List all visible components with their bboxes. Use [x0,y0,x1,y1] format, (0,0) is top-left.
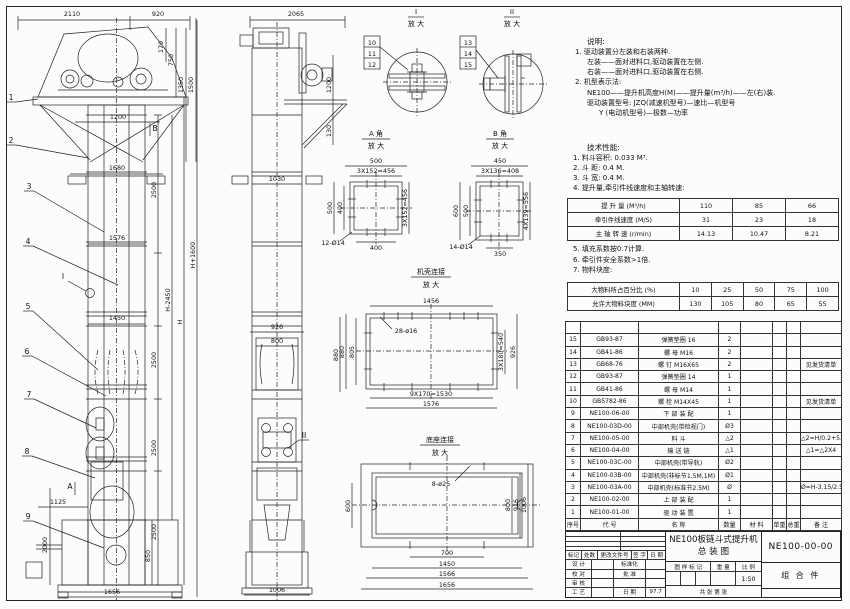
dim-label: 1576 [109,234,125,242]
bom-row: 6NE100-04-00输 送 链△1△1=△2X4 [566,444,842,456]
bom-no: 9 [566,408,581,420]
section-mark-a: A [67,482,73,491]
bom-qty: 1 [719,383,741,395]
dim-label: 400 [370,244,382,252]
callout-6: 6 [25,347,30,356]
dim-label: 600 [452,205,460,217]
detail-subtitle: 放 大 [408,19,424,28]
bom-header: 材 料 [741,518,773,530]
bom-code: GB93-87 [581,371,639,383]
note-line: 驱动装置型号: JZQ(减速机型号)—速比—机型号 [587,98,775,108]
bom-row: 7NE100-05-00料 斗△2△2=H/0.2+5.75 [566,432,842,444]
row-label: 允许大物料块度 (MM) [568,297,680,311]
tb-label: 更改文件号 [598,551,632,559]
bom-name: 螺 栓 M14X45 [639,395,719,407]
row-label: 牵引件线速度 (M/S) [568,213,680,227]
detail-title: B 角 [493,129,507,138]
bom-remark [801,408,842,420]
bom-header: 代 号 [581,518,639,530]
bom-name: 螺 母 M14 [639,383,719,395]
bom-name: 螺 母 M16 [639,346,719,358]
bom-qty: 2 [719,334,741,346]
tb-approve: 批 准 [614,570,646,578]
bom-row: 4NE100-03B-00中部机壳(非标节1.5M,1M)Ø1 [566,469,842,481]
tb-craft: 工 艺 [566,588,592,597]
bom-code: GB93-87 [581,334,639,346]
callout-5: 5 [26,302,31,311]
detail-subtitle: 放 大 [432,448,448,457]
bom-row: 3NE100-03A-00中部机壳(标准节2.5M)ØØ=H-3.15/2.5 [566,481,842,493]
dim-label: 805 [348,346,356,358]
bom-remark: 见发货清单 [801,358,842,370]
bom-code: NE100-03D-00 [581,420,639,432]
cell: 14.13 [680,227,733,241]
bom-name: 中部机壳(带导轨) [639,457,719,469]
bom-remark [801,383,842,395]
dim-label: 3X180=540 [497,333,505,371]
callout-3: 3 [27,182,32,191]
bom-header: 名 称 [639,518,719,530]
bom-remark [801,371,842,383]
dim-label: 850 [144,550,152,562]
dim-label: 1006 [269,586,285,594]
bom-row-empty [566,322,842,334]
tb-scale-label: 比 例 [736,562,760,571]
dim-label: 800 [271,337,283,345]
dim-label: 2500 [150,440,158,456]
tb-check: 校 对 [566,570,592,578]
dim-label: 170 [157,41,165,53]
detail-ii: II 放 大 13 14 15 [460,8,547,118]
dim-label: 500 [370,157,382,165]
note-line: 右装——面对进料口,驱动装置在右侧. [587,67,775,77]
dim-label: 926 [509,346,517,358]
tb-date: 97.7 [646,588,665,597]
bom-name: 输 送 链 [639,444,719,456]
note-line: 2. 机型表示法: [575,77,775,87]
detail-title: II [510,8,514,16]
callout-10: 10 [368,39,376,47]
dim-label: 500 [326,202,334,214]
callout-8: 8 [25,447,30,456]
bom-row: 8NE100-03D-00中部机壳(带检视门)Ø3 [566,420,842,432]
right-panel: 说明: 1. 驱动装置分左装和右装两种. 左装——面对进料口,驱动装置在左侧. … [563,10,843,598]
holes-label: 8-ø25 [432,480,450,488]
callout-13: 13 [464,39,472,47]
detail-mark-ii: II [302,431,306,440]
bom-remark [801,346,842,358]
bom-qty: △1 [719,444,741,456]
bom-remark [801,469,842,481]
bom-name: 弹簧垫圈 16 [639,334,719,346]
bom-no: 14 [566,346,581,358]
dim-label: 2500 [150,182,158,198]
bom-no: 4 [566,469,581,481]
detail-title: I [415,8,417,16]
tech-line: 4. 提升量,牵引件线速度和主轴转速: [573,183,685,193]
dim-label: 3X152=456 [401,189,409,227]
tech-block: 技术性能: 1. 料斗容积: 0.033 M³. 2. 斗 距: 0.4 M. … [573,142,685,194]
cell: 50 [743,283,775,297]
tb-design: 设 计 [566,560,592,568]
row-label: 主 轴 转 速 (r/min) [568,227,680,241]
bom-no: 1 [566,506,581,518]
bom-header: 序号 [566,518,581,530]
tech-line: 3. 斗 宽: 0.4 M. [573,173,685,183]
bom-code: GB68-76 [581,358,639,370]
drawing-subtitle: 总 装 图 [698,547,729,559]
bom-qty: Ø2 [719,457,741,469]
tb-label: 日 期 [648,551,665,559]
side-view [232,22,347,600]
cell: 65 [775,297,807,311]
dim-label: 1456 [423,297,439,305]
section-mark-b: B [152,124,157,133]
front-callouts: 1 2 3 4 5 6 7 8 9 A B I [6,93,158,548]
bom-remark [801,506,842,518]
dim-label: 1656 [439,581,455,589]
title-block-right: NE100-00-00 组 合 件 [762,532,840,597]
row-label: 大物料所占百分比 (%) [568,283,680,297]
bom-header: 数量 [719,518,741,530]
bom-code: GB41-86 [581,383,639,395]
detail-title: 底座连接 [426,435,454,444]
cell: 130 [680,297,712,311]
table-row: 牵引件线速度 (M/S) 31 23 18 [568,213,839,227]
dim-label: 3X136=408 [481,167,519,175]
bom-name: 中部机壳(标准节2.5M) [639,481,719,493]
cell: 25 [711,283,743,297]
tb-mark-label: 图 样 标 记 [666,562,711,571]
dim-label: H-2450 [164,288,172,311]
dim-label: 1500 [187,77,195,93]
drawing-number: NE100-00-00 [762,532,840,563]
bom-row: 12GB93-87弹簧垫圈 141 [566,371,842,383]
holes-label: 28-ø16 [395,327,417,335]
bom-remark [801,334,842,346]
dim-label: 350 [494,250,506,258]
bom-no: 15 [566,334,581,346]
cell: 80 [743,297,775,311]
bom-name: 中部机壳(非标节1.5M,1M) [639,469,719,481]
bom-no: 12 [566,371,581,383]
dim-label: 1450 [439,560,455,568]
note-line: Y (电动机型号)—极数—功率 [599,108,775,118]
bom-no: 6 [566,444,581,456]
detail-title: 机壳连接 [417,267,445,276]
dim-label: 1576 [423,400,439,408]
cell: 10 [680,283,712,297]
cad-drawing: 2110 920 170 750 1350 1500 1200 1680 157… [0,0,565,609]
bom-name: 中部机壳(带检视门) [639,420,719,432]
detail-subtitle: 放 大 [492,141,508,150]
bom-remark [801,420,842,432]
bom-row: 15GB93-87弹簧垫圈 162 [566,334,842,346]
dim-label: 1030 [269,175,285,183]
bom-header: 备 注 [801,518,842,530]
bom-table: 15GB93-87弹簧垫圈 162 14GB41-86螺 母 M162 13GB… [565,321,842,531]
tb-audit: 审 核 [566,579,592,587]
dim-label: 1006 [520,497,528,513]
bom-code: NE100-02-00 [581,494,639,506]
front-dimensions: 2110 920 170 750 1350 1500 1200 1680 157… [18,10,197,597]
bom-row: 13GB68-76螺 钉 M16X652见发货清单 [566,358,842,370]
callout-2: 2 [9,136,14,145]
dim-label: 1200 [325,77,333,93]
bom-qty: 1 [719,494,741,506]
bom-code: NE100-03C-00 [581,457,639,469]
drawing-sheet: 2110 920 170 750 1350 1500 1200 1680 157… [0,0,850,609]
dim-label: 4X139=556 [522,192,530,230]
tb-weight-label: 重 量 [711,562,736,571]
side-dimensions: 2065 1200 130 1030 926 800 880 1006 II [244,10,345,595]
bom-row: 14GB41-86螺 母 M162 [566,346,842,358]
bom-row: 5NE100-03C-00中部机壳(带导轨)Ø2 [566,457,842,469]
callout-14: 14 [464,50,472,58]
bom-row: 2NE100-02-00上 部 装 配1 [566,494,842,506]
dim-label: 2500 [150,524,158,540]
note-line: NE100——提升机高度H(M)——提升量(m³/h)——左(右)装. [587,88,775,98]
tech-heading: 技术性能: [587,142,685,153]
dim-label: 1200 [110,113,126,121]
note-line: 6. 牵引件安全系数>1倍. [573,255,650,266]
bom-qty: 1 [719,408,741,420]
cell: 8.21 [786,227,839,241]
cell: 18 [786,213,839,227]
bom-header-row: 序号 代 号 名 称 数量 材 料 单重 总重 备 注 [566,518,842,530]
dim-label: 920 [152,10,164,18]
cell: 75 [775,283,807,297]
dim-label: 750 [167,54,175,66]
bom-name: 料 斗 [639,432,719,444]
dim-label: 2000 [41,537,49,553]
callout-9: 9 [26,512,31,521]
bom-qty: △2 [719,432,741,444]
bom-code: NE100-05-00 [581,432,639,444]
dim-label: 600 [344,500,352,512]
bom-name: 下 部 装 配 [639,408,719,420]
title-block-center: NE100板链斗式提升机 总 装 图 图 样 标 记 重 量 比 例 1:50 … [666,532,761,597]
dim-label: 1680 [109,164,125,172]
dim-label: 400 [336,202,344,214]
bom-code: GB41-86 [581,346,639,358]
dim-label: H [176,319,184,324]
bom-code: GB5782-86 [581,395,639,407]
tb-scale-value: 1:50 [736,572,760,585]
dim-label: 1350 [177,77,185,93]
bom-remark: △2=H/0.2+5.75 [801,432,842,444]
bom-remark: Ø=H-3.15/2.5 [801,481,842,493]
bom-qty: Ø [719,481,741,493]
dim-label: 880 [338,346,346,358]
bom-qty: 1 [719,395,741,407]
bom-code: NE100-03A-00 [581,481,639,493]
dim-label: 700 [441,549,453,557]
detail-subtitle: 放 大 [368,141,384,150]
bom-code: NE100-03B-00 [581,469,639,481]
detail-title: A 角 [369,129,383,138]
dim-label: 130 [325,125,333,137]
bom-qty: 2 [719,358,741,370]
dim-label: 3X152=456 [357,167,395,175]
dim-label: 1566 [439,570,455,578]
bom-name: 弹簧垫圈 14 [639,371,719,383]
cell: 31 [680,213,733,227]
bom-name: 上 部 装 配 [639,494,719,506]
bom-no: 8 [566,420,581,432]
bom-code: NE100-06-00 [581,408,639,420]
bom-qty: Ø3 [719,420,741,432]
corner-a-detail: A 角 放 大 500 3X152=456 500 400 3X152=456 … [321,129,412,252]
bom-no: 2 [566,494,581,506]
row-label: 提 升 量 (M³/h) [568,199,680,213]
note-line: 5. 填充系数按0.7计算. [573,244,650,255]
callout-11: 11 [368,50,376,58]
lump-size-table: 大物料所占百分比 (%) 10 25 50 75 100 允许大物料块度 (MM… [567,282,839,311]
cell: 105 [711,297,743,311]
callout-15: 15 [464,61,472,69]
tb-label: 签 字 [632,551,648,559]
bom-remark: △1=△2X4 [801,444,842,456]
dim-label: 2500 [150,352,158,368]
dim-label: 9X170=1530 [410,390,452,398]
callout-7: 7 [27,390,32,399]
bom-row: 1NE100-01-00驱 动 装 置1 [566,506,842,518]
cell: 110 [680,199,733,213]
notes-block: 说明: 1. 驱动装置分左装和右装两种. 左装——面对进料口,驱动装置在左侧. … [573,36,775,118]
drawing-title: NE100板链斗式提升机 [669,535,757,547]
capacity-table: 提 升 量 (M³/h) 110 85 66 牵引件线速度 (M/S) 31 2… [567,198,839,241]
dim-label: H+1600 [189,242,197,268]
bom-row: 10GB5782-86螺 栓 M14X451见发货清单 [566,395,842,407]
bom-qty: 1 [719,506,741,518]
bom-remark [801,457,842,469]
dim-label: 916 [512,499,520,511]
bom-remark: 见发货清单 [801,395,842,407]
bom-qty: 1 [719,371,741,383]
bom-name: 螺 钉 M16X65 [639,358,719,370]
callout-1: 1 [9,93,14,102]
dim-label: 1656 [104,588,120,596]
detail-mark-i: I [62,272,64,281]
post-notes: 5. 填充系数按0.7计算. 6. 牵引件安全系数>1倍. 7. 物料块度: [573,244,650,276]
bom-header: 单重 [773,518,787,530]
tb-sheets: 共 张 第 张 [666,586,760,597]
tech-line: 2. 斗 距: 0.4 M. [573,163,685,173]
base-detail: 底座连接 放 大 8-ø25 600 800 916 1006 700 1450… [344,435,542,589]
dim-label: 500 [462,205,470,217]
notes-heading: 说明: [587,36,775,47]
bom-qty: Ø1 [719,469,741,481]
dim-label: 926 [271,323,283,331]
bom-no: 5 [566,457,581,469]
corner-b-detail: B 角 放 大 450 3X136=408 600 500 4X139=556 … [449,129,533,258]
cell: 66 [786,199,839,213]
bom-remark [801,494,842,506]
bom-name: 驱 动 装 置 [639,506,719,518]
detail-subtitle: 放 大 [504,19,520,28]
note-line: 左装——面对进料口,驱动装置在左侧. [587,57,775,67]
title-block-signatures: 标记 处数 更改文件号 签 字 日 期 设 计 标准化 校 对 批 准 审 核 [566,532,666,597]
dim-label: 2110 [64,10,80,18]
bom-qty: 2 [719,346,741,358]
note-line: 1. 驱动装置分左装和右装两种. [575,47,775,57]
part-type: 组 合 件 [762,563,840,589]
dim-label: 1450 [109,314,125,322]
bom-code: NE100-04-00 [581,444,639,456]
shell-flange-detail: 机壳连接 放 大 1456 28-ø16 880 805 3X180=540 9… [338,267,517,408]
tb-label: 标记 [566,551,582,559]
tb-standardization: 标准化 [614,560,646,568]
cell: 85 [733,199,786,213]
bom-header: 总重 [787,518,801,530]
table-row: 大物料所占百分比 (%) 10 25 50 75 100 [568,283,839,297]
bom-row: 11GB41-86螺 母 M141 [566,383,842,395]
tb-date-label: 日 期 [614,588,646,597]
bom-row: 9NE100-06-00下 部 装 配1 [566,408,842,420]
tech-line: 1. 料斗容积: 0.033 M³. [573,153,685,163]
dim-label: 450 [494,157,506,165]
detail-i: I 放 大 10 11 12 [364,8,451,116]
dim-label: 800 [504,499,512,511]
table-row: 允许大物料块度 (MM) 130 105 80 65 55 [568,297,839,311]
dim-label: 1125 [50,498,66,506]
detail-subtitle: 放 大 [423,280,439,289]
table-row: 主 轴 转 速 (r/min) 14.13 10.47 8.21 [568,227,839,241]
tb-label: 处数 [582,551,598,559]
dim-label: 2065 [288,10,304,18]
callout-4: 4 [26,237,31,246]
bom-code: NE100-01-00 [581,506,639,518]
bom-no: 13 [566,358,581,370]
cell: 100 [807,283,839,297]
note-line: 7. 物料块度: [573,265,650,276]
cell: 23 [733,213,786,227]
cell: 10.47 [733,227,786,241]
bom-no: 7 [566,432,581,444]
bom-no: 11 [566,383,581,395]
bom-no: 3 [566,481,581,493]
callout-12: 12 [368,61,376,69]
bom-no: 10 [566,395,581,407]
cell: 55 [807,297,839,311]
title-block: 标记 处数 更改文件号 签 字 日 期 设 计 标准化 校 对 批 准 审 核 [565,531,841,598]
table-row: 提 升 量 (M³/h) 110 85 66 [568,199,839,213]
